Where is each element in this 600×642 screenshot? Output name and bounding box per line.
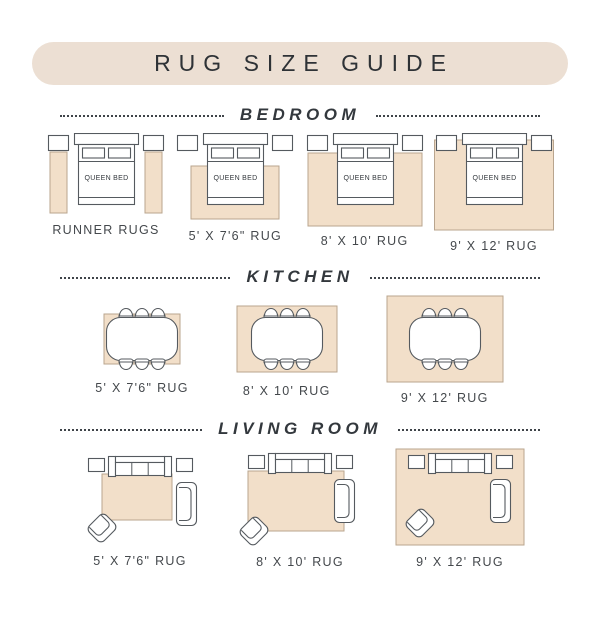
- side-table-icon: [249, 456, 265, 469]
- armchair-icon: [335, 480, 355, 523]
- figure-label: 9' X 12' RUG: [450, 239, 538, 253]
- queen-bed-on-5x76-rug-diagram: [175, 133, 295, 223]
- figure-label: 5' X 7'6" RUG: [95, 381, 189, 395]
- rug-size-guide-banner: RUG SIZE GUIDE: [32, 42, 568, 85]
- bedroom-figure-8x10: 8' X 10' RUG: [305, 133, 425, 248]
- kitchen-figures-row: 5' X 7'6" RUG 8' X 10' RUG 9' X 12' RUG: [20, 293, 580, 405]
- bedroom-figure-9x12: 9' X 12' RUG: [434, 133, 554, 253]
- runner-rug-right: [145, 152, 162, 213]
- kitchen-figure-9x12: 9' X 12' RUG: [385, 293, 505, 405]
- rug-area: [102, 474, 172, 520]
- dining-table-set-icon: [251, 309, 322, 370]
- queen-bed-icon: [204, 134, 268, 205]
- section-heading-bedroom: BEDROOM: [240, 105, 360, 125]
- sofa-set-on-5x76-rug-diagram: [66, 444, 214, 548]
- kitchen-figure-5x76: 5' X 7'6" RUG: [95, 303, 189, 395]
- side-table-icon: [177, 459, 193, 472]
- kitchen-figure-8x10: 8' X 10' RUG: [235, 300, 339, 398]
- sofa-icon: [109, 457, 172, 477]
- dotted-divider-right: [398, 429, 540, 431]
- figure-label: 9' X 12' RUG: [416, 555, 504, 569]
- bedroom-heading-row: BEDROOM: [60, 105, 540, 125]
- nightstand-icon: [307, 136, 327, 151]
- queen-bed-icon: [462, 134, 526, 205]
- dotted-divider-right: [370, 277, 540, 279]
- queen-bed-with-runner-rugs-diagram: [46, 133, 166, 217]
- dotted-divider-right: [376, 115, 540, 117]
- living-room-figure-5x76: 5' X 7'6" RUG: [66, 444, 214, 568]
- nightstand-icon: [144, 136, 164, 151]
- figure-label: 5' X 7'6" RUG: [189, 229, 283, 243]
- dotted-divider-left: [60, 277, 230, 279]
- nightstand-icon: [402, 136, 422, 151]
- section-heading-living-room: LIVING ROOM: [218, 419, 382, 439]
- section-heading-kitchen: KITCHEN: [246, 267, 353, 287]
- banner-title: RUG SIZE GUIDE: [146, 50, 454, 77]
- queen-bed-icon: [75, 134, 139, 205]
- nightstand-icon: [531, 136, 551, 151]
- side-table-icon: [409, 456, 425, 469]
- queen-bed-on-8x10-rug-diagram: [305, 133, 425, 228]
- figure-label: 9' X 12' RUG: [401, 391, 489, 405]
- dotted-divider-left: [60, 429, 202, 431]
- figure-label: 8' X 10' RUG: [321, 234, 409, 248]
- nightstand-icon: [49, 136, 69, 151]
- armchair-icon: [491, 480, 511, 523]
- nightstand-icon: [273, 136, 293, 151]
- bedroom-figures-row: RUNNER RUGS 5' X 7'6" RUG 8' X 10' RUG 9…: [46, 133, 554, 253]
- queen-bed-icon: [333, 134, 397, 205]
- kitchen-heading-row: KITCHEN: [60, 267, 540, 287]
- living-room-figures-row: 5' X 7'6" RUG 8' X 10' RUG 9' X 12' RUG: [10, 443, 590, 569]
- living-room-heading-row: LIVING ROOM: [60, 419, 540, 439]
- living-room-figure-8x10: 8' X 10' RUG: [226, 443, 374, 569]
- sofa-set-on-8x10-rug-diagram: [226, 443, 374, 549]
- side-table-icon: [337, 456, 353, 469]
- armchair-icon: [177, 483, 197, 526]
- nightstand-icon: [178, 136, 198, 151]
- dining-table-on-8x10-rug-diagram: [235, 300, 339, 378]
- bedroom-figure-5x76: 5' X 7'6" RUG: [175, 133, 295, 243]
- dotted-divider-left: [60, 115, 224, 117]
- figure-label: 8' X 10' RUG: [243, 384, 331, 398]
- dining-table-on-9x12-rug-diagram: [385, 293, 505, 385]
- bedroom-figure-runner-rugs: RUNNER RUGS: [46, 133, 166, 237]
- dining-table-set-icon: [107, 309, 178, 370]
- dining-table-set-icon: [409, 309, 480, 370]
- queen-bed-on-9x12-rug-diagram: [434, 133, 554, 233]
- side-table-icon: [497, 456, 513, 469]
- figure-label: 8' X 10' RUG: [256, 555, 344, 569]
- side-table-icon: [89, 459, 105, 472]
- figure-label: RUNNER RUGS: [52, 223, 159, 237]
- runner-rug-left: [50, 152, 67, 213]
- dining-table-on-5x76-rug-diagram: [100, 303, 184, 375]
- sofa-icon: [429, 454, 492, 474]
- sofa-set-on-9x12-rug-diagram: [386, 443, 534, 549]
- figure-label: 5' X 7'6" RUG: [93, 554, 187, 568]
- sofa-icon: [269, 454, 332, 474]
- nightstand-icon: [436, 136, 456, 151]
- living-room-figure-9x12: 9' X 12' RUG: [386, 443, 534, 569]
